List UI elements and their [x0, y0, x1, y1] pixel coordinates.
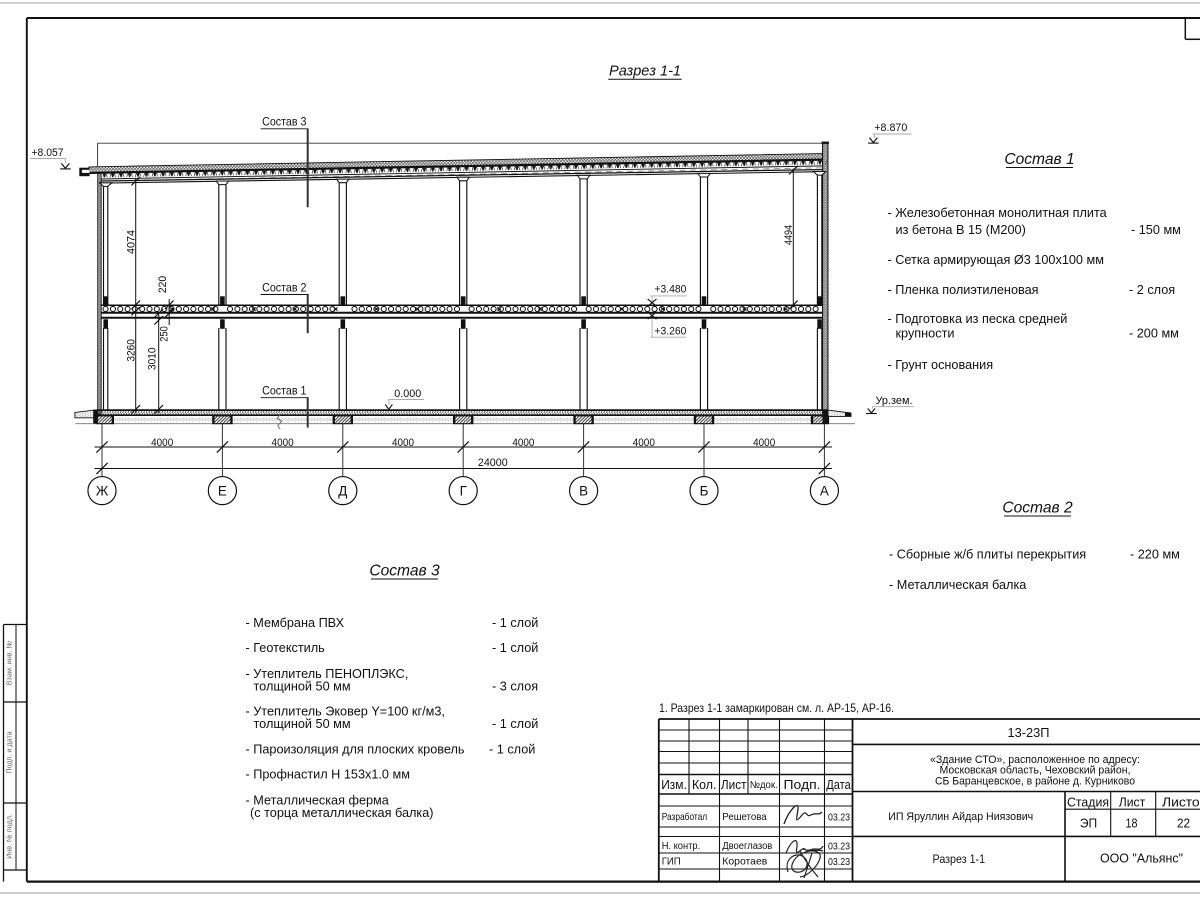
- svg-text:ГИП: ГИП: [662, 856, 681, 867]
- svg-text:4000: 4000: [392, 437, 414, 449]
- svg-text:03.23: 03.23: [828, 841, 850, 852]
- svg-text:4000: 4000: [512, 437, 534, 449]
- svg-text:Лист: Лист: [1119, 795, 1146, 809]
- svg-text:№док.: №док.: [750, 780, 778, 791]
- svg-text:Дата: Дата: [826, 778, 851, 792]
- svg-text:3260: 3260: [126, 339, 138, 362]
- svg-text:Стадия: Стадия: [1067, 795, 1109, 809]
- svg-text:- 1 слой: - 1 слой: [492, 717, 538, 731]
- svg-text:+8.057: +8.057: [32, 147, 64, 159]
- svg-text:Состав 1: Состав 1: [262, 385, 306, 398]
- svg-text:4494: 4494: [783, 225, 795, 245]
- svg-text:Разрез 1-1: Разрез 1-1: [933, 853, 986, 866]
- svg-text:Инв. № подл.: Инв. № подл.: [4, 814, 13, 859]
- svg-text:- 220 мм: - 220 мм: [1130, 547, 1180, 561]
- svg-text:- Железобетонная монолитная п: - Железобетонная монолитная плита: [888, 206, 1108, 220]
- svg-text:Ур.зем.: Ур.зем.: [876, 395, 913, 407]
- svg-text:Подп. и дата: Подп. и дата: [4, 731, 13, 773]
- svg-text:- 1 слой: - 1 слой: [492, 641, 538, 655]
- svg-text:0.000: 0.000: [394, 388, 421, 400]
- svg-text:24000: 24000: [478, 457, 508, 469]
- svg-text:+3.480: +3.480: [654, 283, 686, 295]
- svg-text:Двоеглазов: Двоеглазов: [722, 841, 772, 852]
- svg-text:- Пароизоляция для плоских кро: - Пароизоляция для плоских кровель: [246, 743, 465, 757]
- svg-text:- Сетка армирующая Ø3 100х100: - Сетка армирующая Ø3 100х100 мм: [888, 253, 1104, 267]
- svg-text:- 2 слоя: - 2 слоя: [1129, 283, 1175, 297]
- svg-text:18: 18: [1126, 816, 1138, 831]
- svg-text:Кол.: Кол.: [692, 778, 717, 792]
- svg-text:толщиной 50 мм: толщиной 50 мм: [254, 717, 351, 731]
- svg-text:Разрез 1-1: Разрез 1-1: [609, 63, 681, 79]
- svg-text:Н. контр.: Н. контр.: [662, 841, 701, 852]
- svg-text:+8.870: +8.870: [874, 122, 907, 134]
- svg-text:- 1 слой: - 1 слой: [489, 743, 535, 757]
- svg-text:4074: 4074: [126, 230, 138, 254]
- svg-text:22: 22: [1177, 816, 1190, 831]
- svg-text:Подп.: Подп.: [784, 778, 821, 792]
- svg-text:4000: 4000: [151, 437, 173, 449]
- svg-text:4000: 4000: [753, 437, 775, 449]
- svg-text:- Грунт основания: - Грунт основания: [888, 358, 994, 372]
- svg-text:- Мембрана ПВХ: - Мембрана ПВХ: [246, 616, 345, 630]
- svg-text:толщиной 50 мм: толщиной 50 мм: [254, 680, 351, 694]
- svg-text:Состав 2: Состав 2: [262, 281, 306, 294]
- svg-text:крупности: крупности: [896, 326, 955, 340]
- svg-text:4000: 4000: [633, 437, 655, 449]
- svg-text:Е: Е: [218, 483, 227, 498]
- svg-text:Коротаев: Коротаев: [722, 856, 767, 867]
- svg-text:Состав 1: Состав 1: [1004, 151, 1074, 168]
- svg-text:Решетова: Решетова: [722, 812, 767, 823]
- svg-text:Изм.: Изм.: [661, 778, 687, 792]
- svg-text:- Металлическая балка: - Металлическая балка: [889, 578, 1027, 592]
- svg-text:- Пленка полиэтиленовая: - Пленка полиэтиленовая: [888, 283, 1039, 297]
- svg-text:(с торца металлическая балка): (с торца металлическая балка): [250, 806, 434, 820]
- svg-text:- 200 мм: - 200 мм: [1129, 326, 1179, 340]
- svg-text:ЭП: ЭП: [1080, 816, 1097, 831]
- svg-text:Листов: Листов: [1162, 795, 1200, 809]
- svg-text:- Профнастил Н 153х1.0 мм: - Профнастил Н 153х1.0 мм: [246, 768, 410, 782]
- svg-text:Разработал: Разработал: [662, 811, 708, 823]
- svg-text:СБ Баранцевское, в районе д. К: СБ Баранцевское, в районе д. Курниково: [935, 775, 1135, 787]
- svg-text:- Сборные ж/б плиты перекрытия: - Сборные ж/б плиты перекрытия: [889, 547, 1086, 561]
- svg-text:Состав 2: Состав 2: [1002, 499, 1073, 516]
- svg-text:Взам. инв. №: Взам. инв. №: [4, 640, 13, 685]
- svg-text:03.23: 03.23: [828, 812, 850, 823]
- svg-text:Ж: Ж: [96, 483, 109, 498]
- svg-text:ООО "Альянс": ООО "Альянс": [1100, 851, 1183, 866]
- svg-text:Состав 3: Состав 3: [262, 116, 306, 129]
- svg-text:- Подготовка из песка средней: - Подготовка из песка средней: [888, 312, 1068, 326]
- svg-text:ИП Яруллин Айдар Ниязович: ИП Яруллин Айдар Ниязович: [888, 811, 1033, 823]
- svg-text:Состав 3: Состав 3: [369, 562, 440, 579]
- svg-text:1. Разрез 1-1 замаркирован см.: 1. Разрез 1-1 замаркирован см. л. АР-15,…: [659, 702, 894, 715]
- svg-text:из бетона В 15 (М200): из бетона В 15 (М200): [896, 223, 1026, 237]
- svg-text:Д: Д: [338, 483, 347, 498]
- svg-text:- 3 слоя: - 3 слоя: [492, 680, 538, 694]
- svg-text:3010: 3010: [147, 348, 159, 371]
- svg-text:- 1 слой: - 1 слой: [492, 616, 538, 630]
- svg-text:220: 220: [157, 276, 169, 293]
- svg-text:03.23: 03.23: [828, 857, 850, 868]
- svg-text:- 150 мм: - 150 мм: [1131, 223, 1181, 237]
- svg-text:Лист: Лист: [721, 778, 747, 792]
- svg-text:А: А: [820, 483, 829, 498]
- svg-text:4000: 4000: [272, 437, 294, 449]
- svg-text:+3.260: +3.260: [654, 326, 686, 338]
- svg-text:- Геотекстиль: - Геотекстиль: [246, 641, 326, 655]
- svg-text:В: В: [579, 483, 588, 498]
- svg-text:Г: Г: [460, 483, 467, 498]
- svg-text:13-23П: 13-23П: [1008, 725, 1050, 740]
- svg-text:250: 250: [159, 326, 171, 341]
- svg-text:Б: Б: [700, 483, 709, 498]
